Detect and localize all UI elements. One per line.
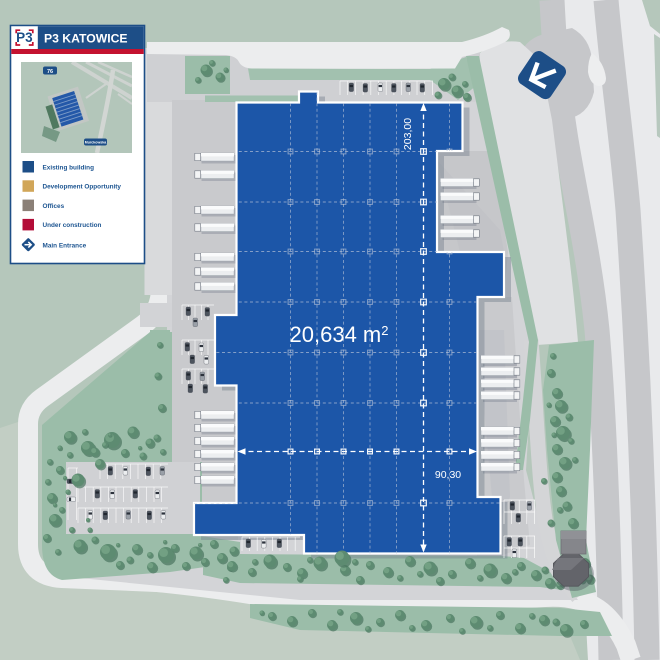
- svg-text:Main Entrance: Main Entrance: [43, 243, 87, 250]
- svg-text:90,30: 90,30: [435, 469, 461, 481]
- svg-text:P3 KATOWICE: P3 KATOWICE: [44, 32, 128, 46]
- svg-text:P3: P3: [16, 30, 33, 45]
- svg-text:Existing building: Existing building: [43, 164, 95, 171]
- svg-text:203,00: 203,00: [402, 118, 414, 150]
- svg-text:Offices: Offices: [43, 203, 65, 210]
- svg-text:76: 76: [47, 69, 53, 75]
- svg-text:20,634 m2: 20,634 m2: [290, 322, 389, 347]
- svg-text:Murckowska: Murckowska: [85, 141, 108, 145]
- svg-text:Under construction: Under construction: [43, 222, 102, 229]
- svg-text:Development Opportunity: Development Opportunity: [43, 184, 122, 191]
